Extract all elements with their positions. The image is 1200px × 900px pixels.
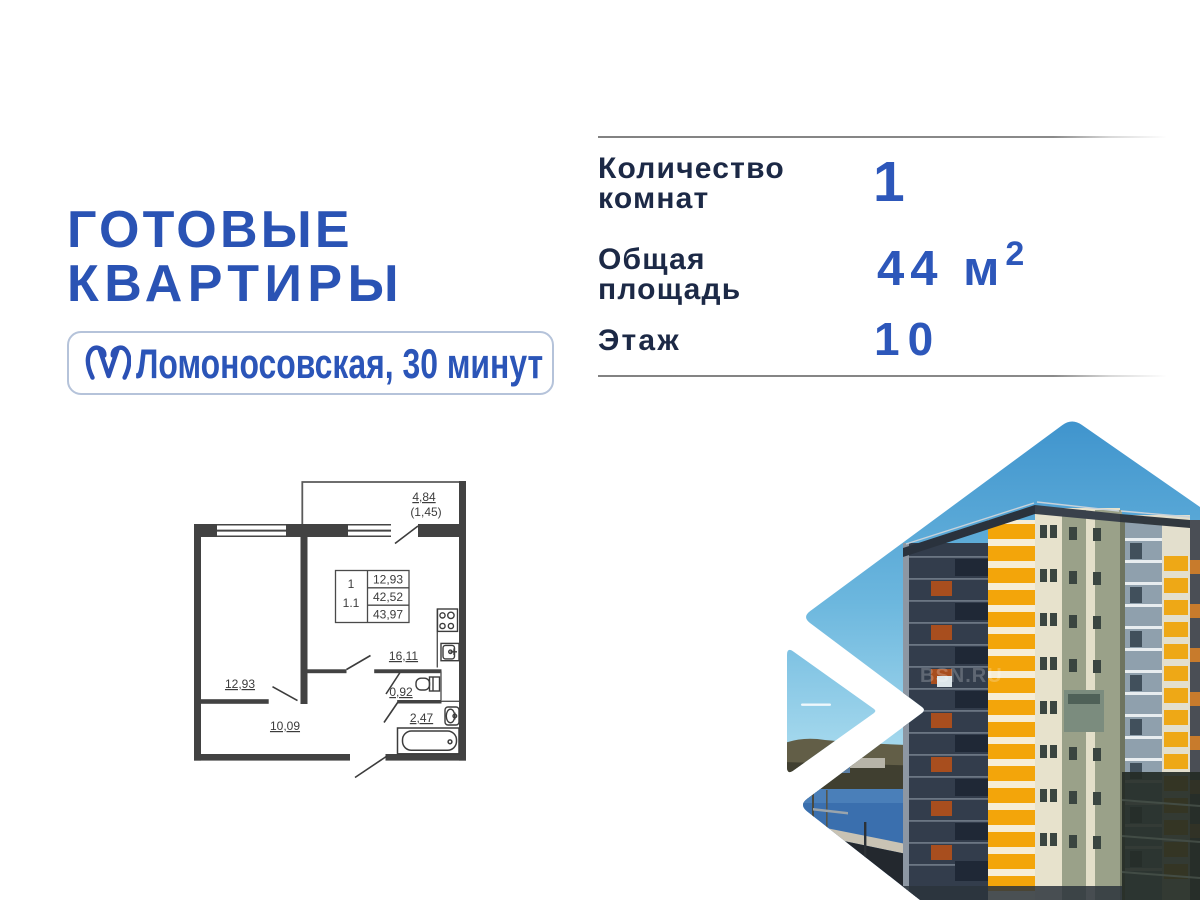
svg-text:16,11: 16,11 bbox=[389, 649, 418, 663]
svg-text:(1,45): (1,45) bbox=[410, 505, 441, 519]
svg-text:4,84: 4,84 bbox=[412, 490, 436, 504]
svg-text:1.1: 1.1 bbox=[343, 596, 360, 610]
svg-text:10,09: 10,09 bbox=[270, 719, 300, 733]
svg-text:12,93: 12,93 bbox=[225, 677, 255, 691]
svg-text:42,52: 42,52 bbox=[373, 590, 403, 604]
svg-text:2,47: 2,47 bbox=[410, 711, 434, 725]
svg-text:43,97: 43,97 bbox=[373, 608, 403, 622]
svg-text:BSN.RU: BSN.RU bbox=[920, 665, 1003, 687]
svg-text:1: 1 bbox=[348, 577, 355, 591]
svg-text:0,92: 0,92 bbox=[389, 685, 413, 699]
svg-text:12,93: 12,93 bbox=[373, 573, 403, 587]
